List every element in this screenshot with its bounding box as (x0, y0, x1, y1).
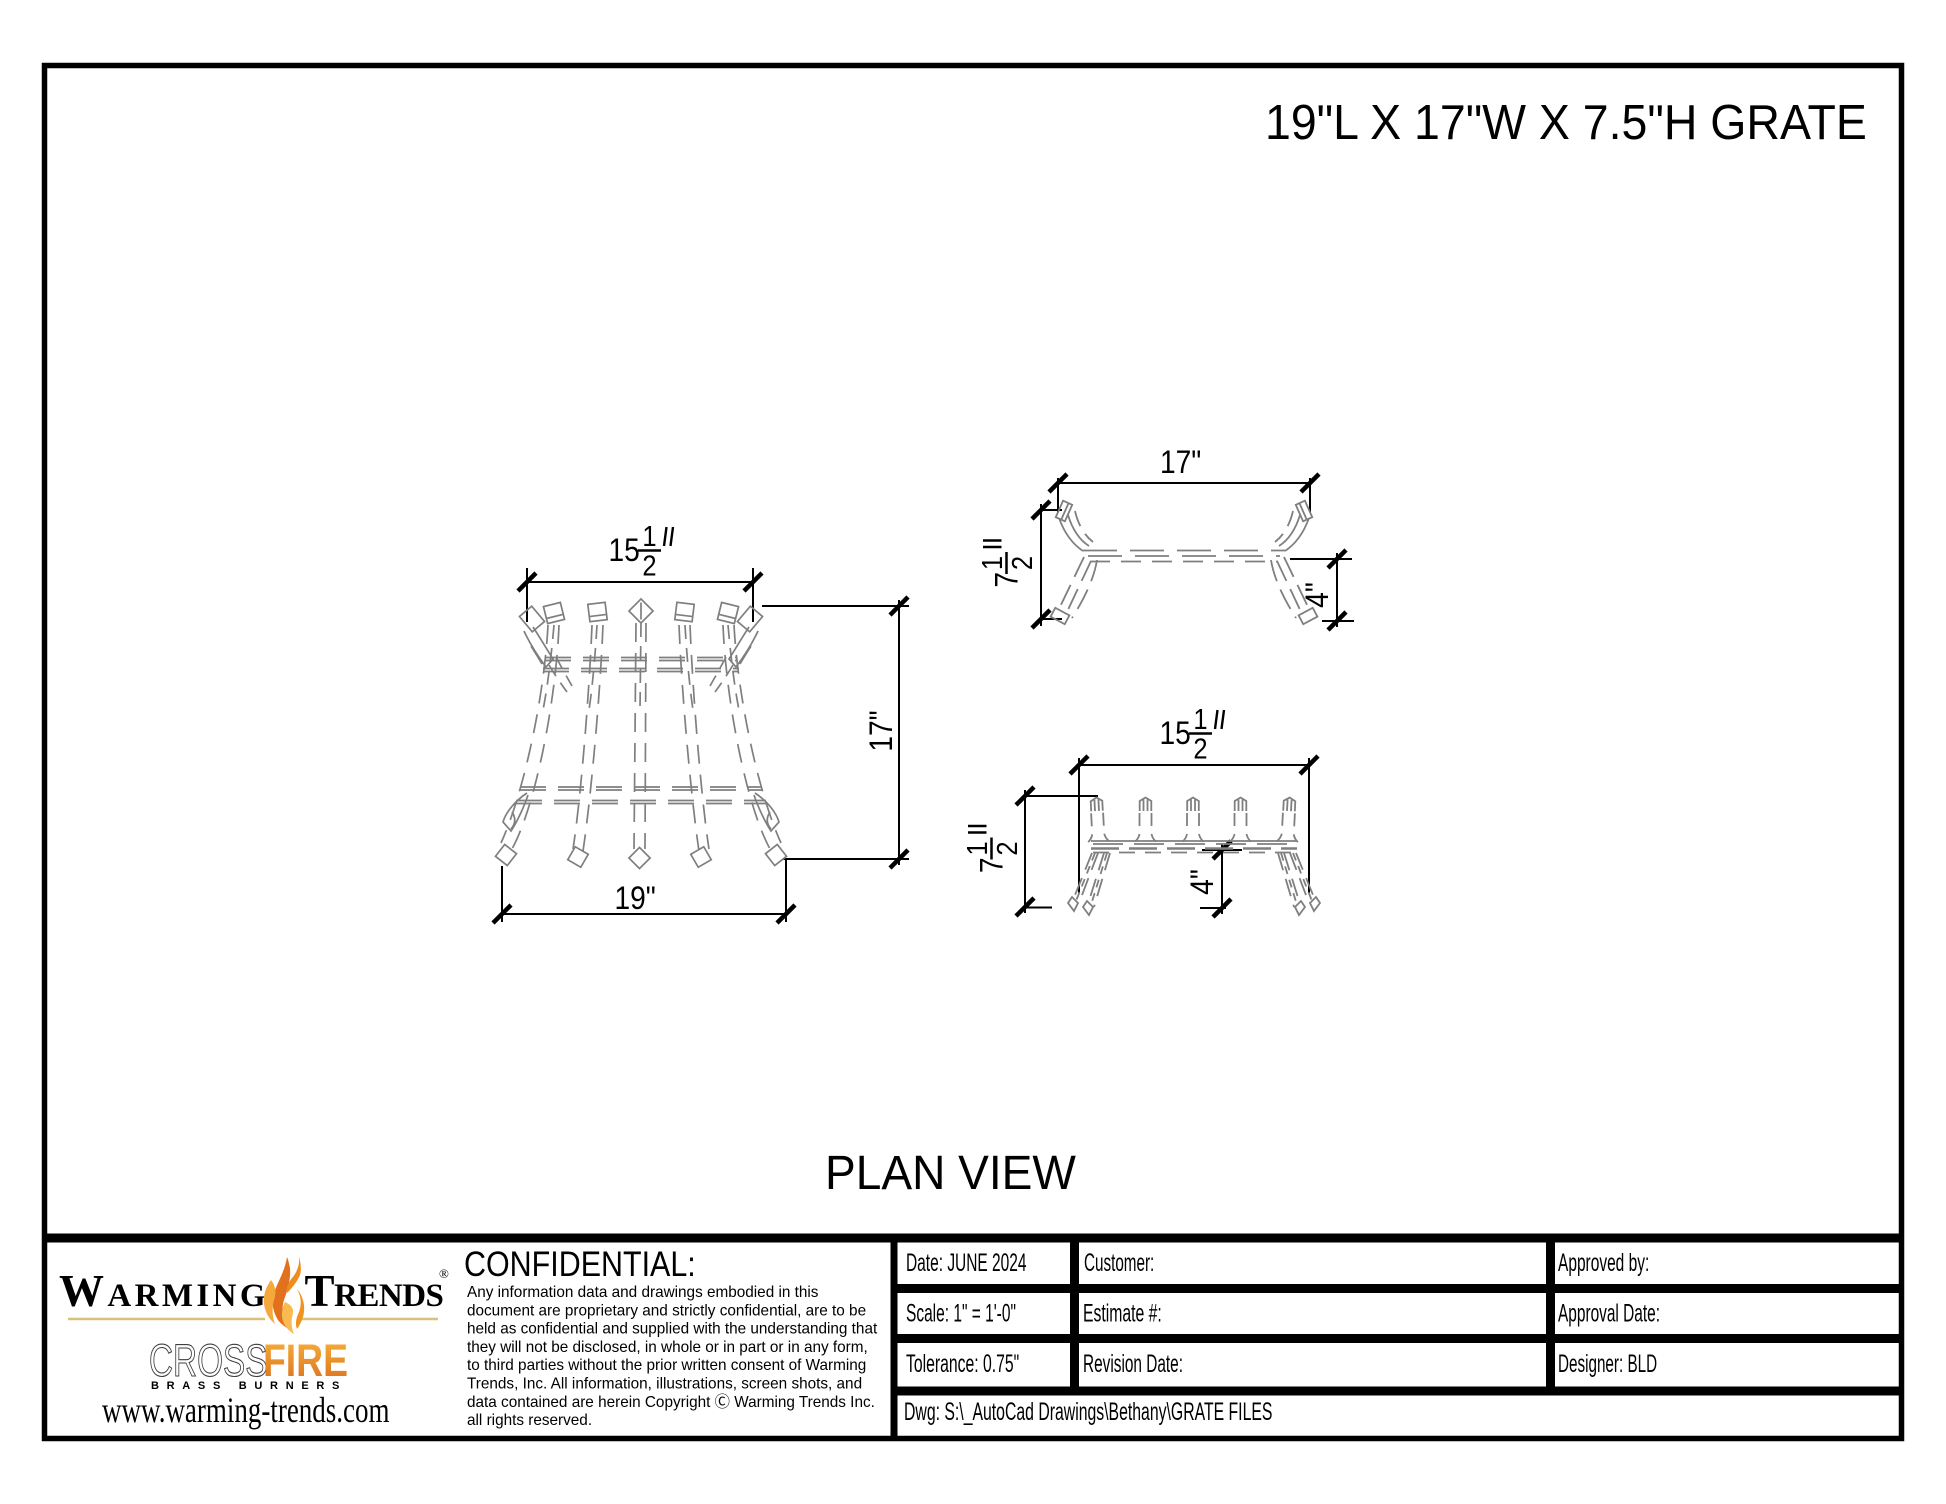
svg-text:2: 2 (990, 841, 1023, 855)
svg-text:all rights reserved.: all rights reserved. (467, 1412, 592, 1429)
svg-text:17": 17" (864, 710, 899, 751)
svg-text:1: 1 (642, 519, 656, 552)
svg-text:19": 19" (615, 881, 656, 916)
svg-text:CROSS: CROSS (149, 1336, 267, 1386)
svg-text:WARMING: WARMING (59, 1266, 269, 1316)
svg-text:TRENDS: TRENDS (305, 1266, 444, 1316)
svg-text:Trends, Inc. All information,: Trends, Inc. All information, illustrati… (467, 1375, 862, 1392)
svg-text:FIRE: FIRE (263, 1336, 348, 1386)
svg-text:Date: JUNE 2024: Date: JUNE 2024 (906, 1249, 1027, 1277)
svg-text:Approval Date:: Approval Date: (1558, 1300, 1660, 1328)
svg-text:7: 7 (990, 572, 1025, 588)
svg-text:19"L X 17"W X 7.5"H GRATE: 19"L X 17"W X 7.5"H GRATE (1265, 96, 1867, 150)
svg-text:they will not be disclosed, in: they will not be disclosed, in whole or … (467, 1339, 868, 1356)
svg-text:document are proprietary and s: document are proprietary and strictly co… (467, 1302, 866, 1319)
svg-text:1: 1 (1193, 702, 1207, 735)
svg-text:17": 17" (1160, 445, 1201, 480)
svg-text:PLAN VIEW: PLAN VIEW (825, 1146, 1076, 1200)
svg-text:7: 7 (975, 858, 1010, 874)
svg-text:1: 1 (960, 841, 993, 855)
svg-text:®: ® (439, 1266, 449, 1281)
svg-text:15: 15 (609, 533, 640, 568)
svg-text:Customer:: Customer: (1084, 1249, 1154, 1277)
svg-text:2: 2 (642, 549, 656, 582)
svg-text:15: 15 (1160, 716, 1191, 751)
svg-text:Any information data and drawi: Any information data and drawings embodi… (467, 1284, 819, 1301)
svg-text:2: 2 (1005, 556, 1038, 570)
svg-text:1: 1 (975, 556, 1008, 570)
svg-text:2: 2 (1193, 732, 1207, 765)
svg-text:Dwg: S:\_AutoCad Drawings\Bet: Dwg: S:\_AutoCad Drawings\Bethany\GRATE … (904, 1398, 1272, 1425)
svg-text:4": 4" (1185, 869, 1220, 895)
svg-text:Scale: 1" = 1'-0": Scale: 1" = 1'-0" (906, 1300, 1016, 1328)
svg-text:CONFIDENTIAL:: CONFIDENTIAL: (464, 1244, 696, 1283)
svg-text:held as confidential and suppl: held as confidential and supplied with t… (467, 1320, 878, 1337)
svg-text:www.warming-trends.com: www.warming-trends.com (102, 1390, 390, 1430)
svg-text:Designer: BLD: Designer: BLD (1558, 1350, 1657, 1378)
svg-text:to third parties without the p: to third parties without the prior writt… (467, 1357, 866, 1374)
svg-text:Revision Date:: Revision Date: (1083, 1350, 1183, 1378)
svg-text:Tolerance: 0.75": Tolerance: 0.75" (906, 1350, 1019, 1378)
svg-text:Estimate #:: Estimate #: (1083, 1300, 1162, 1328)
svg-text:Approved by:: Approved by: (1558, 1249, 1649, 1277)
svg-text:data contained are herein Copy: data contained are herein Copyright Ⓒ Wa… (467, 1393, 875, 1411)
